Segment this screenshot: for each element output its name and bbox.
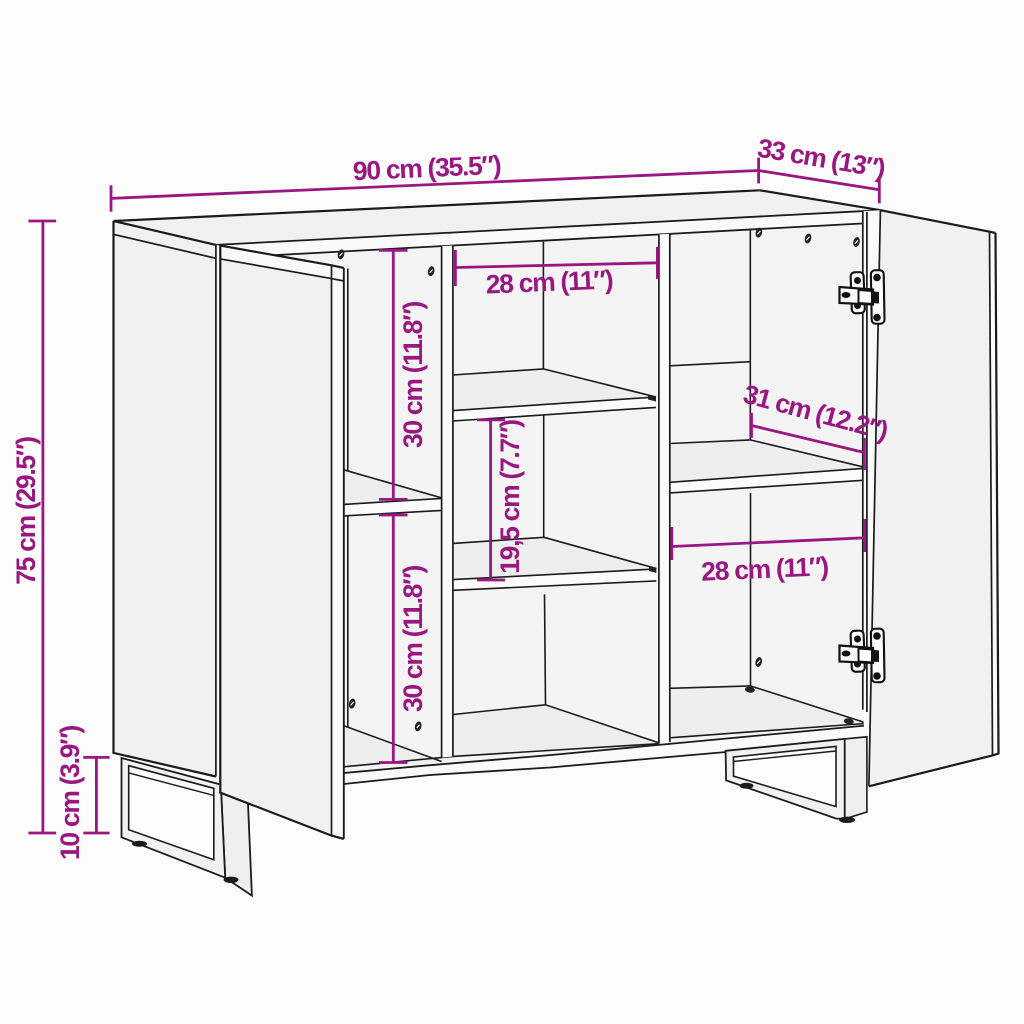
- svg-text:30 cm (11.8″): 30 cm (11.8″): [398, 301, 428, 448]
- svg-text:28 cm (11″): 28 cm (11″): [485, 264, 613, 299]
- svg-text:10 cm (3.9″): 10 cm (3.9″): [55, 725, 85, 860]
- svg-text:30 cm (11.8″): 30 cm (11.8″): [398, 565, 428, 712]
- svg-text:75 cm (29.5″): 75 cm (29.5″): [11, 437, 41, 585]
- svg-text:28 cm (11″): 28 cm (11″): [701, 551, 829, 587]
- svg-text:19,5 cm (7.7″): 19,5 cm (7.7″): [495, 420, 525, 574]
